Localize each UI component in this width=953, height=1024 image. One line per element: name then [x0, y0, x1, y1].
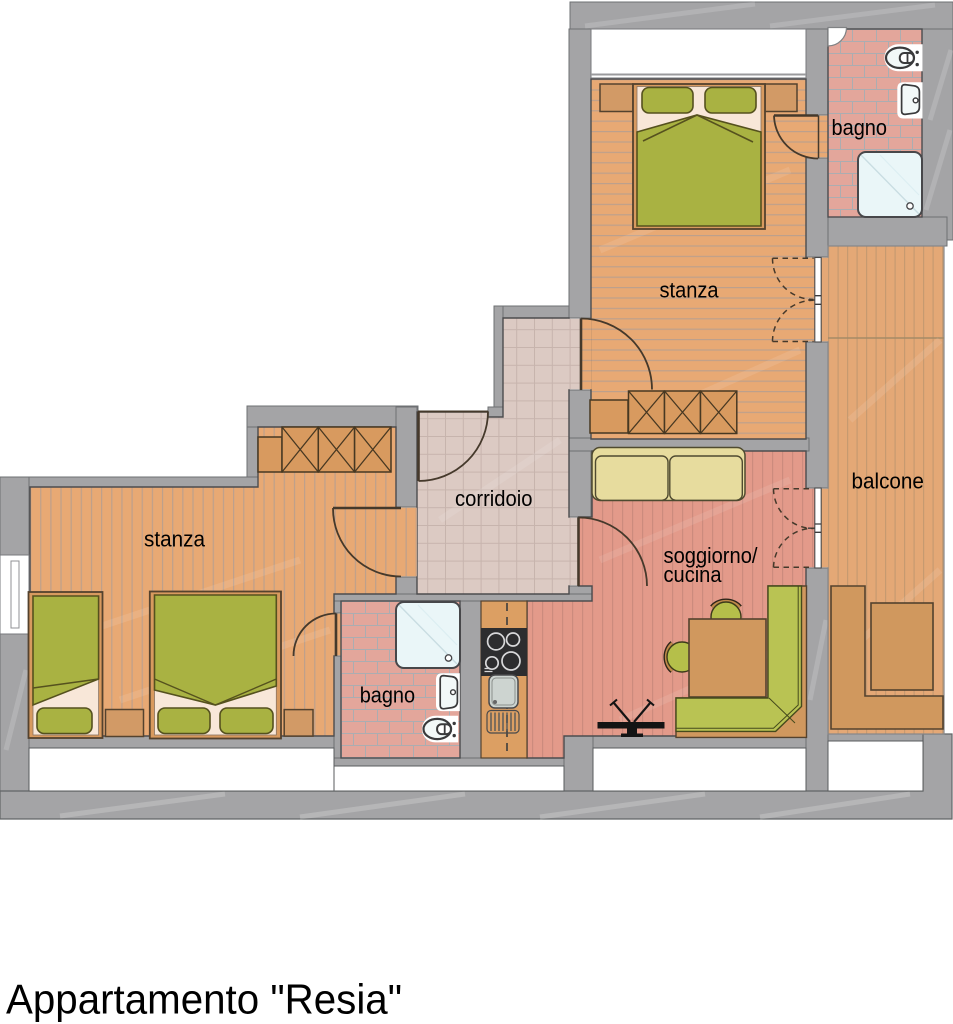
- svg-text:stanza: stanza: [660, 278, 719, 303]
- svg-text:bagno: bagno: [360, 683, 415, 708]
- svg-text:stanza: stanza: [144, 527, 205, 552]
- svg-text:balcone: balcone: [852, 469, 924, 494]
- svg-text:cucina: cucina: [664, 562, 722, 587]
- svg-text:corridoio: corridoio: [455, 486, 533, 511]
- svg-text:bagno: bagno: [832, 115, 888, 140]
- svg-text:Appartamento "Resia": Appartamento "Resia": [6, 976, 402, 1023]
